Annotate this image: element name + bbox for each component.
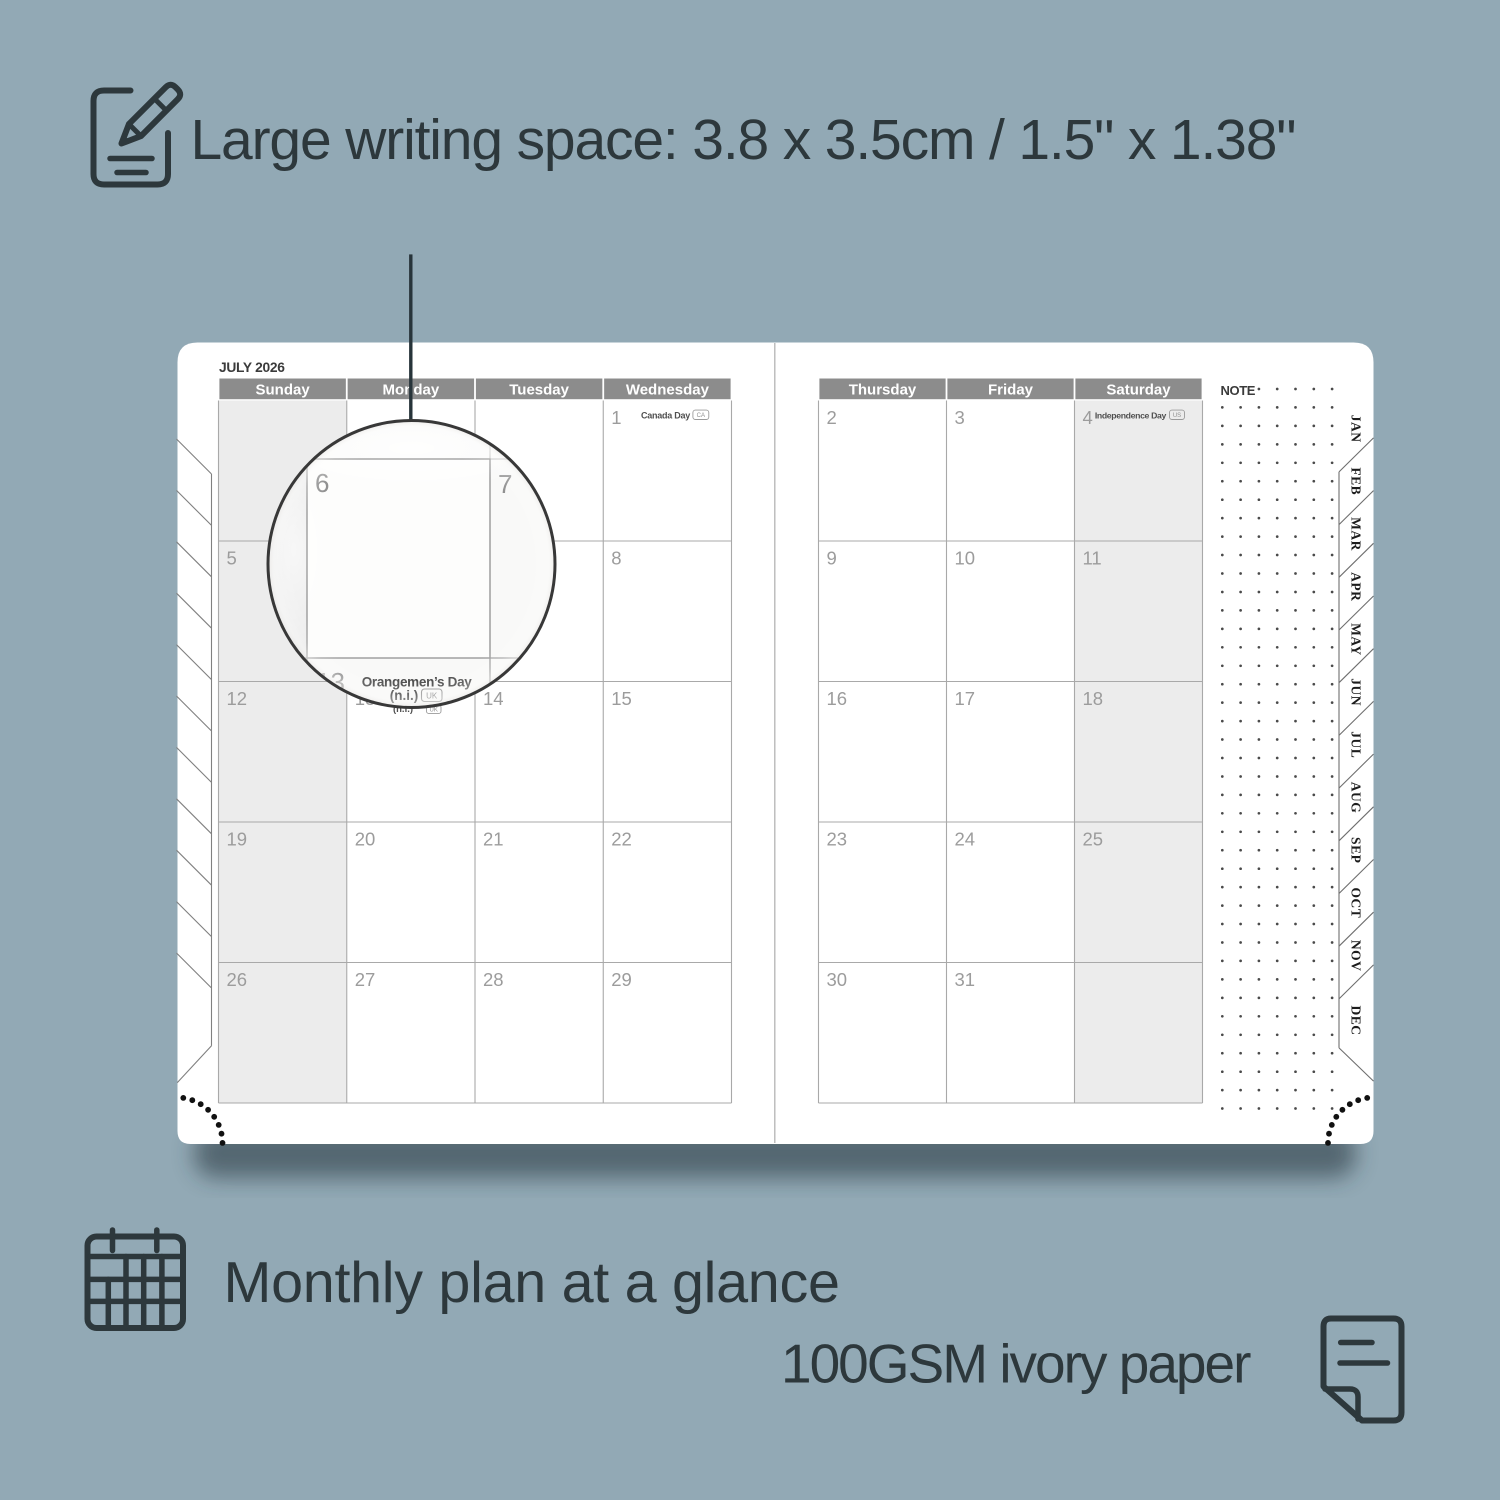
svg-text:31: 31 [955, 969, 976, 990]
svg-text:Tuesday: Tuesday [509, 382, 569, 399]
svg-text:JULY 2026: JULY 2026 [219, 360, 285, 375]
svg-text:Wednesday: Wednesday [626, 382, 710, 399]
svg-text:4: 4 [1083, 407, 1093, 428]
svg-text:JUL: JUL [1348, 731, 1363, 758]
svg-text:AUG: AUG [1348, 782, 1363, 814]
svg-text:CA: CA [697, 413, 705, 419]
svg-text:20: 20 [355, 829, 376, 850]
svg-text:27: 27 [355, 969, 376, 990]
svg-text:24: 24 [955, 829, 976, 850]
svg-text:26: 26 [227, 969, 248, 990]
svg-text:12: 12 [227, 688, 248, 709]
svg-text:US: US [1173, 413, 1181, 419]
svg-text:Large writing space: 3.8 x 3.5: Large writing space: 3.8 x 3.5cm / 1.5" … [191, 108, 1296, 172]
svg-text:DEC: DEC [1348, 1005, 1363, 1035]
svg-text:3: 3 [955, 407, 965, 428]
svg-text:MAR: MAR [1348, 517, 1363, 551]
svg-text:Friday: Friday [988, 382, 1034, 399]
svg-text:11: 11 [1083, 548, 1102, 569]
svg-text:28: 28 [483, 969, 504, 990]
svg-text:JAN: JAN [1348, 415, 1363, 443]
svg-text:APR: APR [1348, 572, 1363, 601]
svg-text:8: 8 [611, 548, 621, 569]
svg-text:UK: UK [430, 708, 438, 714]
svg-text:FEB: FEB [1348, 467, 1363, 495]
svg-text:22: 22 [611, 829, 632, 850]
svg-text:2: 2 [827, 407, 837, 428]
svg-text:Sunday: Sunday [256, 382, 311, 399]
svg-text:JUN: JUN [1348, 678, 1363, 706]
svg-text:14: 14 [483, 688, 504, 709]
svg-text:1: 1 [611, 407, 621, 428]
svg-text:17: 17 [955, 688, 976, 709]
svg-text:Canada Day: Canada Day [641, 411, 690, 421]
svg-text:25: 25 [1083, 829, 1104, 850]
svg-text:18: 18 [1083, 688, 1104, 709]
svg-text:Monthly plan at a glance: Monthly plan at a glance [224, 1251, 840, 1315]
svg-text:19: 19 [227, 829, 248, 850]
svg-text:Saturday: Saturday [1106, 382, 1171, 399]
svg-text:10: 10 [955, 548, 976, 569]
svg-text:SEP: SEP [1348, 837, 1363, 863]
svg-text:Independence Day: Independence Day [1095, 411, 1167, 421]
svg-text:OCT: OCT [1348, 888, 1363, 919]
svg-text:23: 23 [827, 829, 848, 850]
svg-text:29: 29 [611, 969, 632, 990]
svg-text:15: 15 [611, 688, 632, 709]
svg-text:21: 21 [483, 829, 504, 850]
svg-text:MAY: MAY [1348, 623, 1363, 656]
svg-text:9: 9 [827, 548, 837, 569]
svg-text:100GSM ivory paper: 100GSM ivory paper [781, 1333, 1251, 1395]
svg-text:16: 16 [827, 688, 848, 709]
svg-text:5: 5 [227, 548, 237, 569]
svg-text:NOV: NOV [1348, 940, 1363, 972]
svg-text:NOTE: NOTE [1221, 383, 1256, 398]
svg-text:30: 30 [827, 969, 848, 990]
svg-text:Thursday: Thursday [849, 382, 917, 399]
